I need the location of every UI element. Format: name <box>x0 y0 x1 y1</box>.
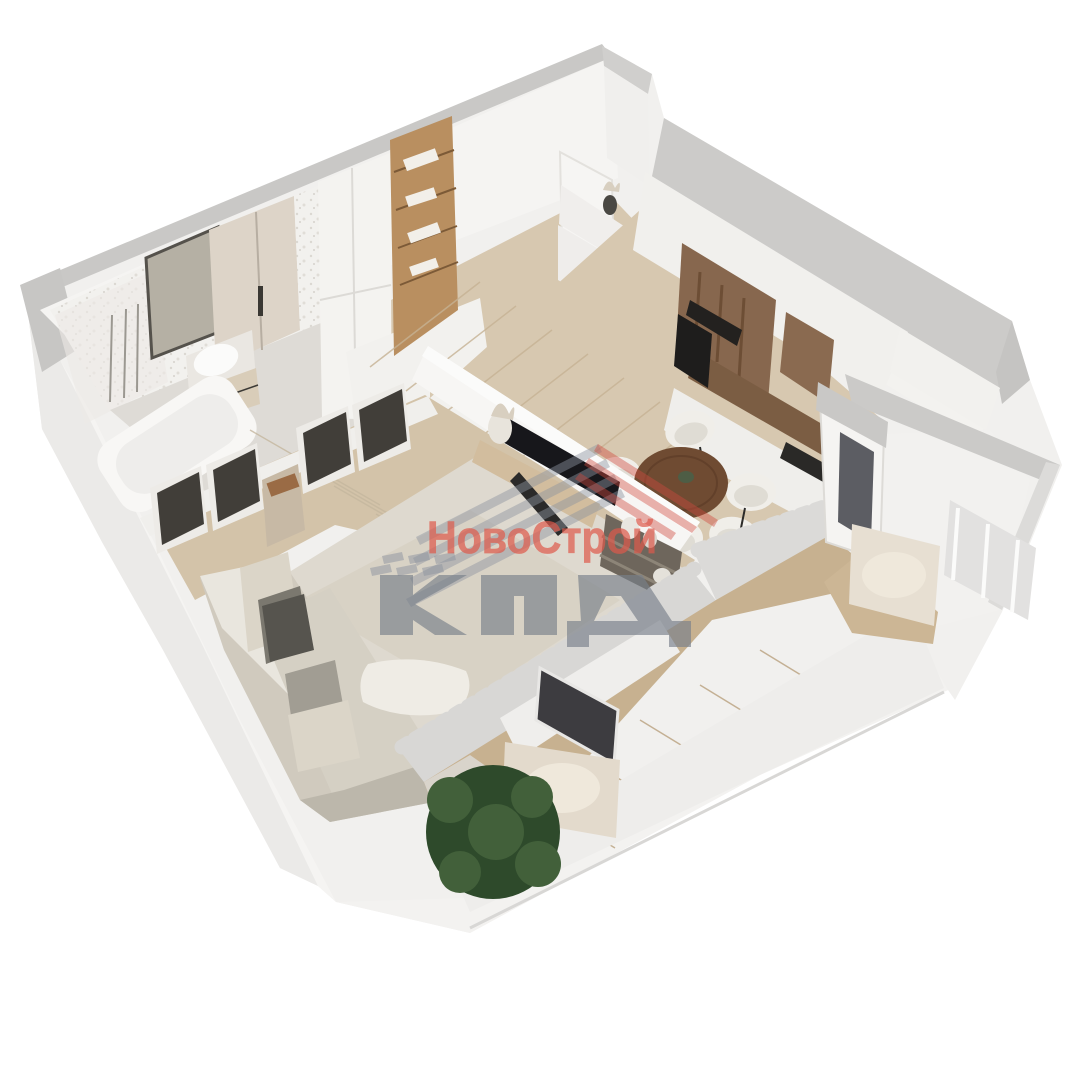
svg-text:НовоСтрой: НовоСтрой <box>427 512 657 563</box>
